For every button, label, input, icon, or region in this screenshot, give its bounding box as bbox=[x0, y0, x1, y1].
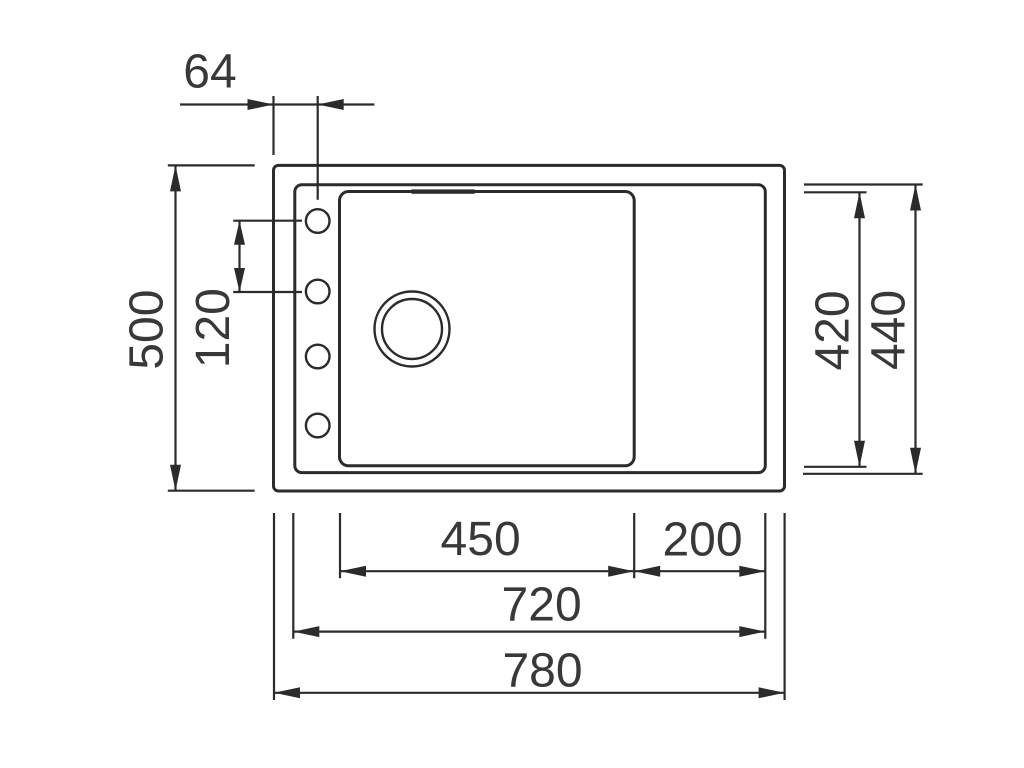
svg-text:780: 780 bbox=[502, 644, 582, 697]
svg-text:200: 200 bbox=[662, 514, 742, 567]
svg-text:420: 420 bbox=[807, 290, 860, 370]
svg-text:440: 440 bbox=[863, 290, 916, 370]
svg-text:500: 500 bbox=[121, 290, 174, 370]
svg-text:450: 450 bbox=[441, 513, 521, 566]
svg-text:120: 120 bbox=[187, 288, 240, 368]
svg-text:64: 64 bbox=[183, 46, 236, 99]
svg-text:720: 720 bbox=[502, 578, 582, 631]
